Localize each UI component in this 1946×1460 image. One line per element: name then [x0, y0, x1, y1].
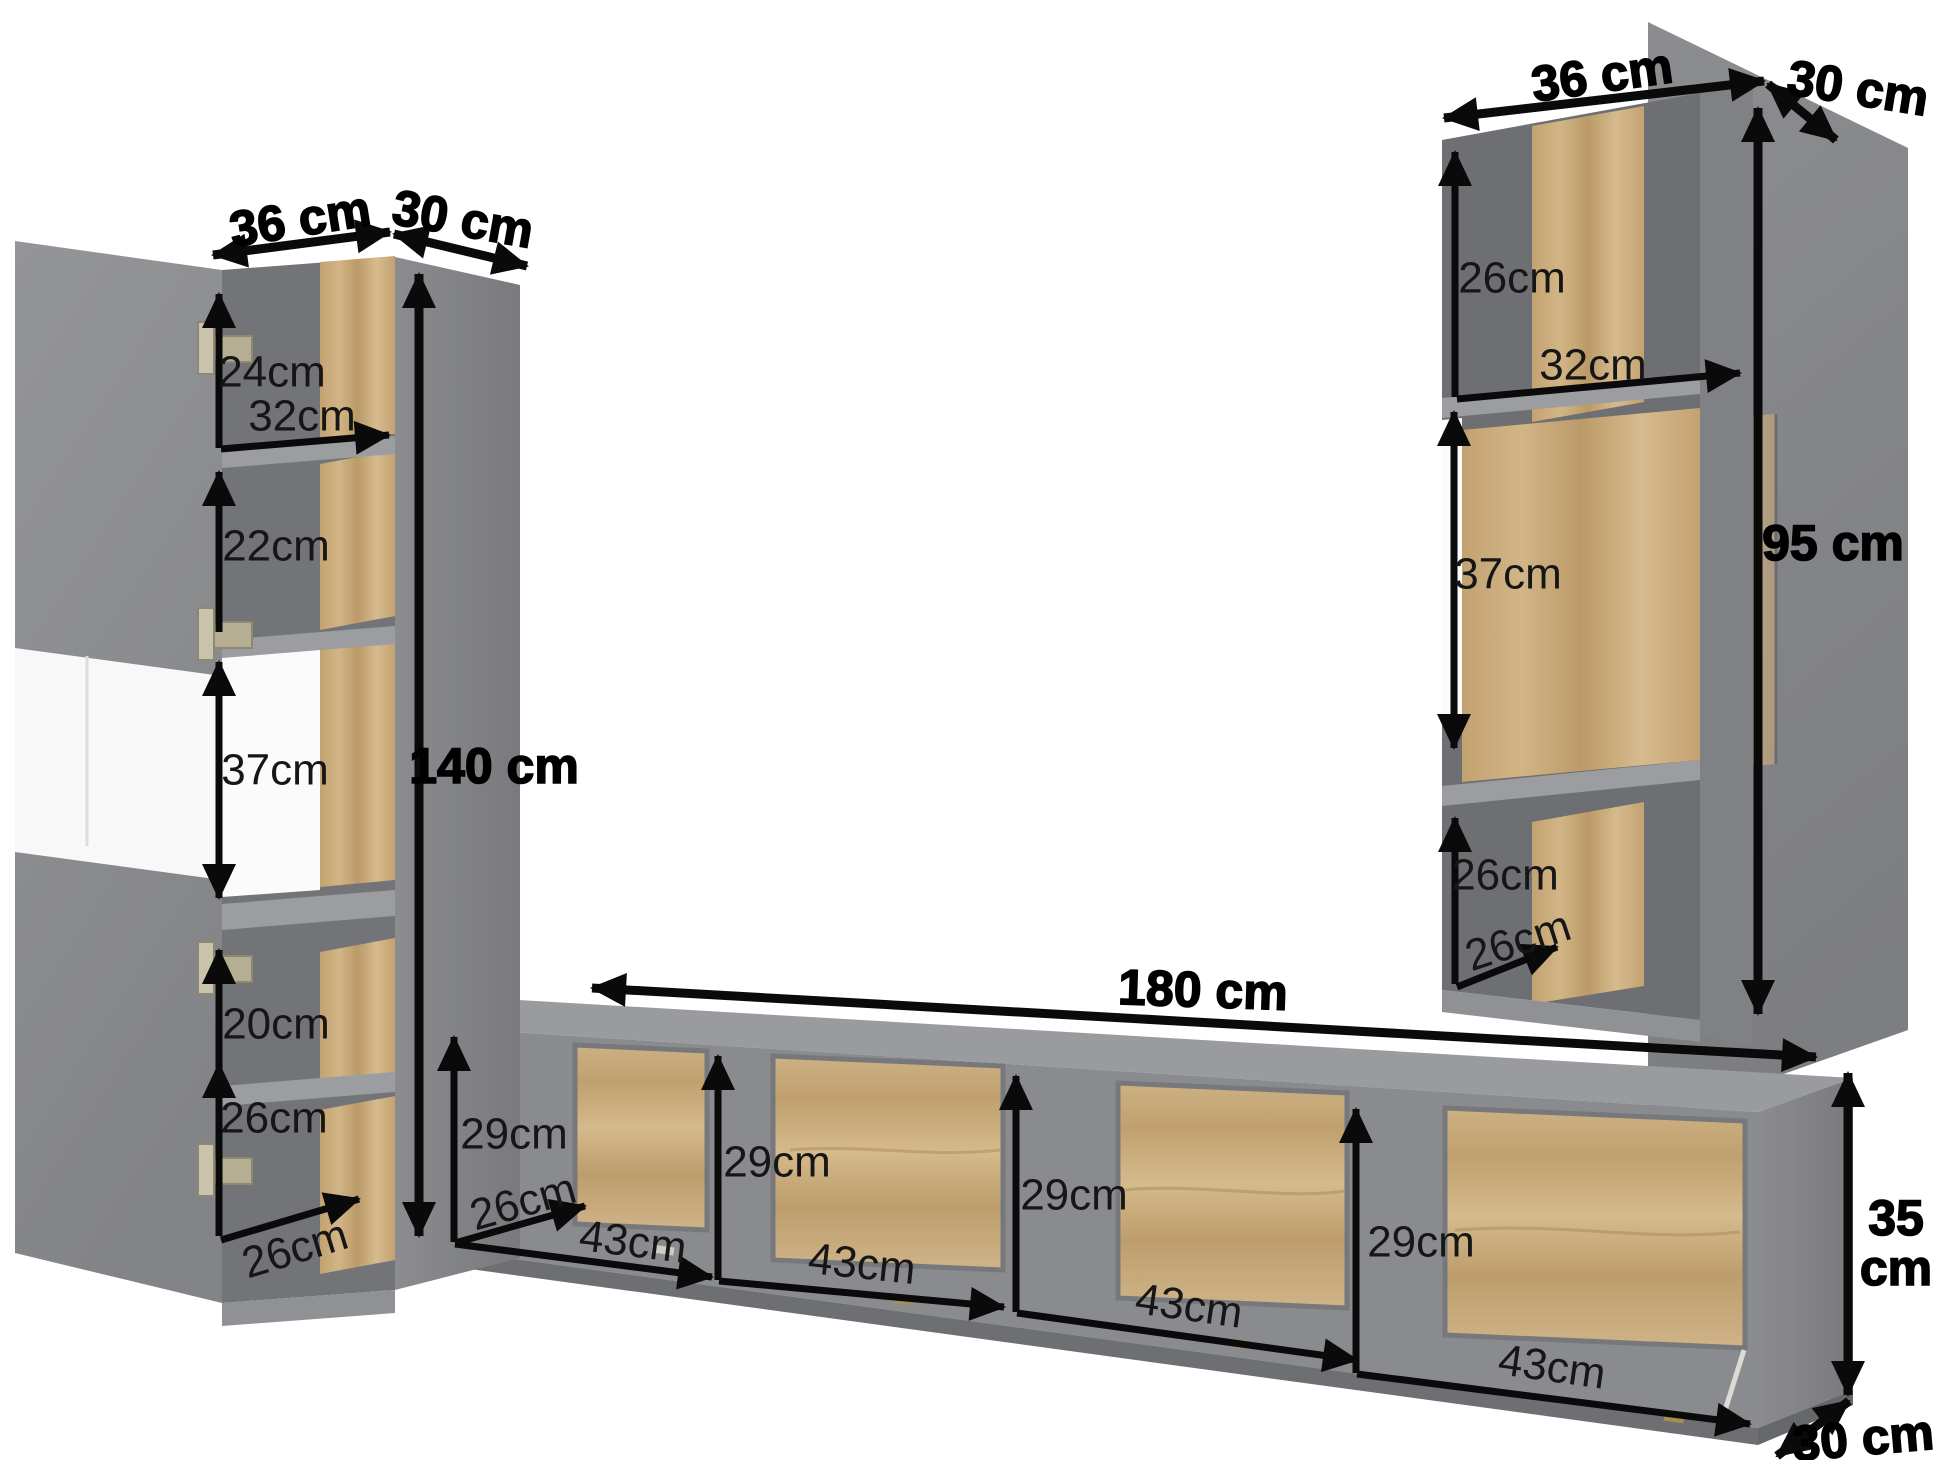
- right-cabinet-bottom-compartment-wood-back: [1532, 802, 1644, 1004]
- right-cabinet-shelf-width-label: 32cm: [1539, 341, 1647, 390]
- left-cabinet-section-label: 20cm: [222, 1000, 330, 1049]
- left-cabinet-door-glass: [15, 648, 222, 880]
- diagram-canvas: 36 cm 30 cm 140 cm 24cm 32cm 22cm 37cm 2…: [0, 0, 1946, 1460]
- tv-stand-compartment-height-label: 29cm: [1020, 1171, 1128, 1220]
- furniture-dimension-diagram: 36 cm 30 cm 140 cm 24cm 32cm 22cm 37cm 2…: [0, 0, 1946, 1460]
- left-cabinet-width-label: 36 cm: [226, 180, 375, 257]
- left-cabinet-depth-label: 30 cm: [388, 179, 537, 259]
- right-cabinet-height-label: 95 cm: [1762, 515, 1904, 571]
- right-cabinet-section-label: 37cm: [1454, 550, 1562, 599]
- tv-stand-compartment-wood-back: [1118, 1083, 1347, 1308]
- right-cabinet-section-label: 26cm: [1458, 254, 1566, 303]
- right-cabinet-section-label: 26cm: [1451, 851, 1559, 900]
- left-cabinet-section-label: 24cm: [218, 348, 326, 397]
- tv-stand-compartment-wood-back: [575, 1045, 707, 1230]
- left-cabinet-section-label: 26cm: [220, 1094, 328, 1143]
- right-cabinet-side-panel: [1700, 81, 1753, 1046]
- tv-stand-compartment-height-label: 29cm: [1367, 1218, 1475, 1267]
- tv-stand-compartment-height-label: 29cm: [460, 1110, 568, 1159]
- left-cabinet-wood-back-strip: [320, 636, 395, 887]
- left-cabinet-section-label: 22cm: [222, 522, 330, 571]
- left-cabinet-shelf-width-label: 32cm: [248, 392, 356, 441]
- left-cabinet-height-label: 140 cm: [409, 738, 579, 794]
- left-cabinet-wood-back-strip: [320, 450, 395, 630]
- left-cabinet-section-label: 37cm: [221, 746, 329, 795]
- tv-stand-height-value-label: 35: [1868, 1190, 1924, 1246]
- tv-stand-compartment-height-label: 29cm: [723, 1138, 831, 1187]
- tv-stand-side-face: [1758, 1078, 1853, 1428]
- tv-stand-width-label: 180 cm: [1117, 959, 1288, 1021]
- left-cabinet-wood-back-strip: [320, 938, 395, 1090]
- tv-stand-height-unit-label: cm: [1860, 1240, 1932, 1296]
